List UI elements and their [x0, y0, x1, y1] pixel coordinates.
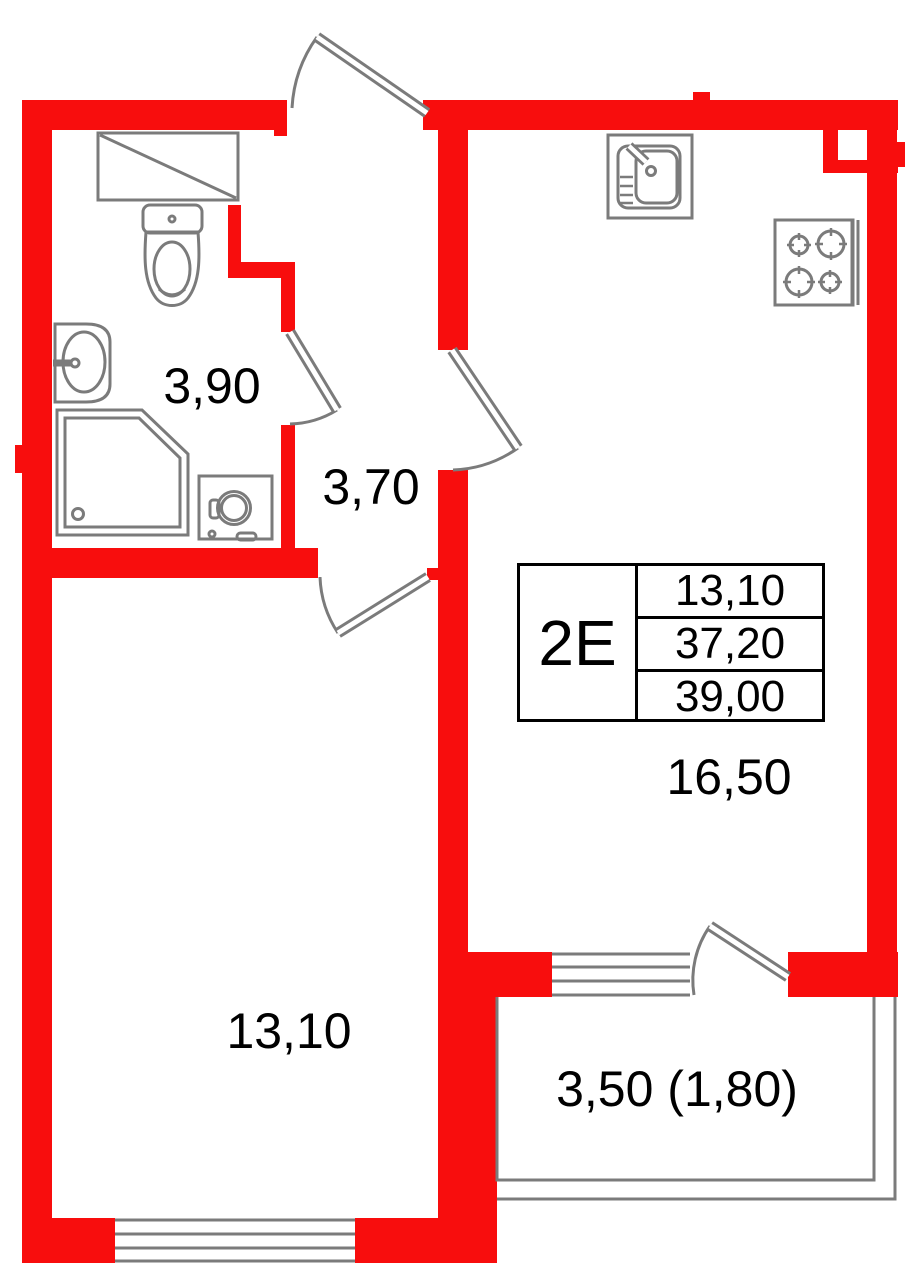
- kitchen-sink-icon: [608, 135, 692, 218]
- wall-central-top: [438, 100, 468, 350]
- window-balcony: [552, 954, 690, 995]
- wall-left-bump: [15, 445, 23, 473]
- bathroom-door-arc: [290, 410, 337, 424]
- wall-central-mid: [438, 470, 468, 568]
- cabinet-icon: [98, 133, 238, 200]
- balcony-area-label: 3,50 (1,80): [556, 1060, 798, 1118]
- toilet-icon: [143, 205, 202, 306]
- wall-right-bump: [897, 142, 905, 167]
- wall-entrance-jamb: [274, 128, 287, 136]
- wall-bath-right-lower: [281, 425, 295, 552]
- kitchen-area-label: 16,50: [666, 748, 791, 806]
- wall-kitchen-sill-left: [438, 952, 552, 997]
- wall-top-nub: [693, 92, 710, 101]
- unit-info-box: 2Е 13,10 37,20 39,00: [517, 563, 825, 722]
- floor-plan: 3,90 3,70 13,10 16,50 3,50 (1,80) 2Е 13,…: [0, 0, 921, 1286]
- wall-bottom-right: [355, 1218, 497, 1263]
- wall-shaft-bottom: [823, 160, 898, 173]
- bathroom-area-label: 3,90: [163, 357, 260, 415]
- unit-living-area: 13,10: [638, 566, 822, 616]
- kitchen-door-arc: [453, 448, 518, 470]
- unit-area-no-balcony: 37,20: [638, 616, 822, 669]
- wall-kitchen-sill-right: [788, 952, 898, 997]
- stove-icon: [775, 220, 858, 305]
- washing-machine-icon: [199, 476, 272, 540]
- wall-top-right: [423, 100, 898, 130]
- entrance-door-arc: [292, 37, 317, 108]
- shower-cabin-icon: [57, 410, 188, 535]
- window-room: [115, 1220, 355, 1261]
- hallway-area-label: 3,70: [322, 458, 419, 516]
- wall-top-left: [22, 100, 287, 130]
- wall-left-exterior: [22, 100, 52, 1263]
- balcony-door-arc: [693, 926, 710, 995]
- wall-right-exterior: [867, 100, 897, 997]
- wall-central-bottom: [438, 568, 468, 952]
- wall-bath-bottom: [22, 548, 318, 578]
- unit-areas-column: 13,10 37,20 39,00: [638, 566, 822, 719]
- unit-total-area: 39,00: [638, 669, 822, 722]
- room-area-label: 13,10: [226, 1002, 351, 1060]
- wall-bath-step-vertical: [228, 205, 241, 265]
- wall-bottom-left: [22, 1218, 115, 1263]
- unit-type-label: 2Е: [520, 566, 638, 719]
- wash-basin-icon: [53, 324, 110, 402]
- wall-bath-right-upper: [281, 262, 295, 332]
- room-door-arc: [320, 577, 338, 633]
